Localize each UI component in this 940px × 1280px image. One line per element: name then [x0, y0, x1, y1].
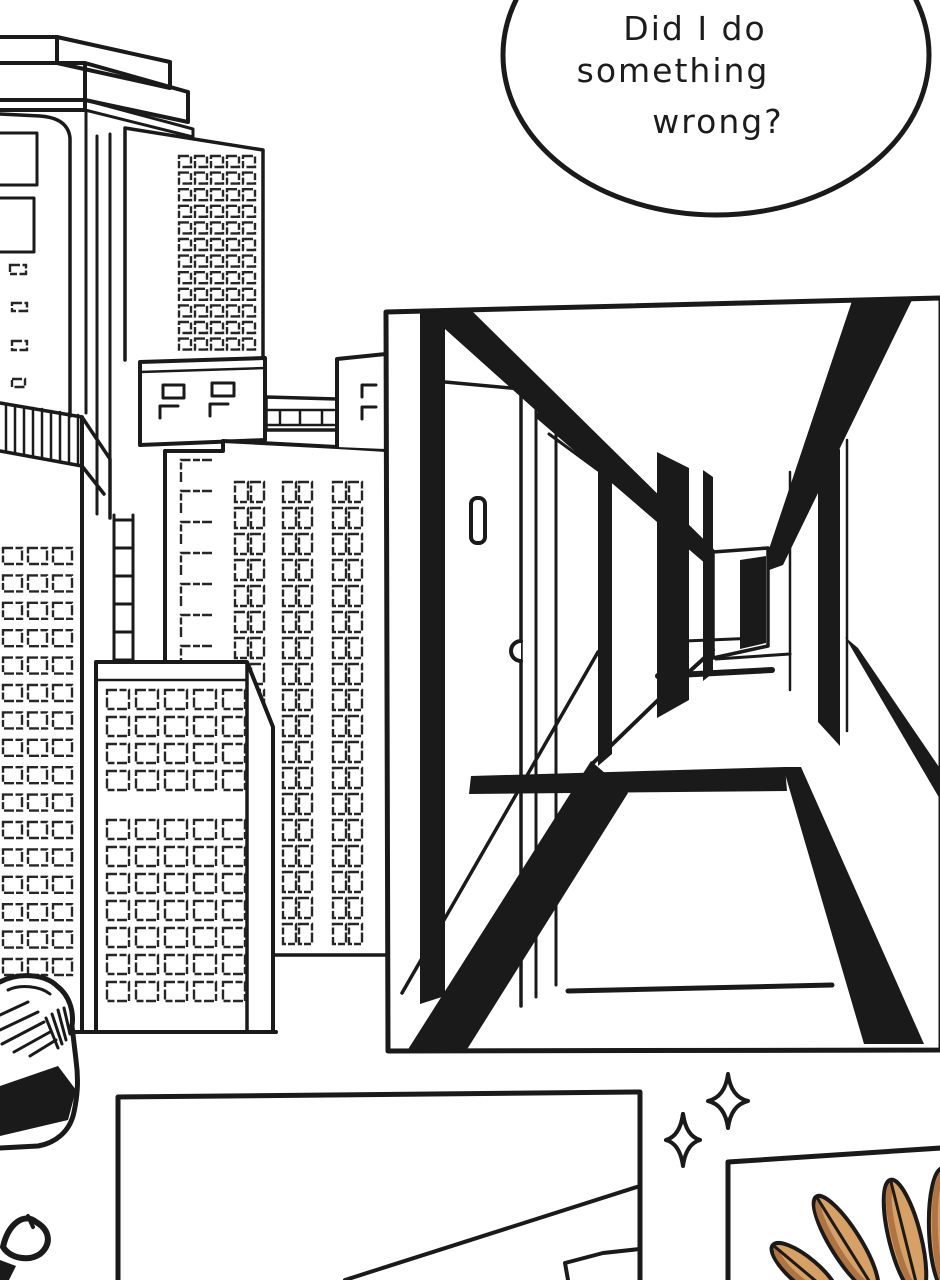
speech-line-2: something [577, 51, 770, 90]
corridor-end [713, 548, 768, 658]
end-door [740, 556, 766, 649]
sketch-small-shape [0, 1216, 48, 1280]
sparkles-icon [666, 1074, 748, 1166]
sketch-sack [0, 976, 77, 1148]
building-narrow-strip [97, 134, 133, 663]
door-knob [511, 641, 521, 661]
speech-line-3: wrong? [652, 102, 783, 141]
door-peephole [471, 498, 485, 543]
bottom-left-panel [118, 1092, 640, 1280]
bottom-right-panel [728, 1148, 940, 1280]
hallway-panel [386, 298, 940, 1051]
door-gap-shadow [420, 312, 445, 1004]
building-foreground-tower [96, 662, 273, 1032]
building-low-block [140, 358, 265, 445]
speech-line-1: Did I do [623, 9, 766, 48]
city-skyline [0, 37, 386, 1032]
comic-page: Did I do something wrong? [0, 0, 940, 1280]
building-edge-tower [337, 353, 386, 449]
building-band-block [266, 397, 337, 430]
building-grid-tower [125, 128, 263, 360]
speech-bubble: Did I do something wrong? [503, 0, 929, 215]
comic-art: Did I do something wrong? [0, 0, 940, 1280]
